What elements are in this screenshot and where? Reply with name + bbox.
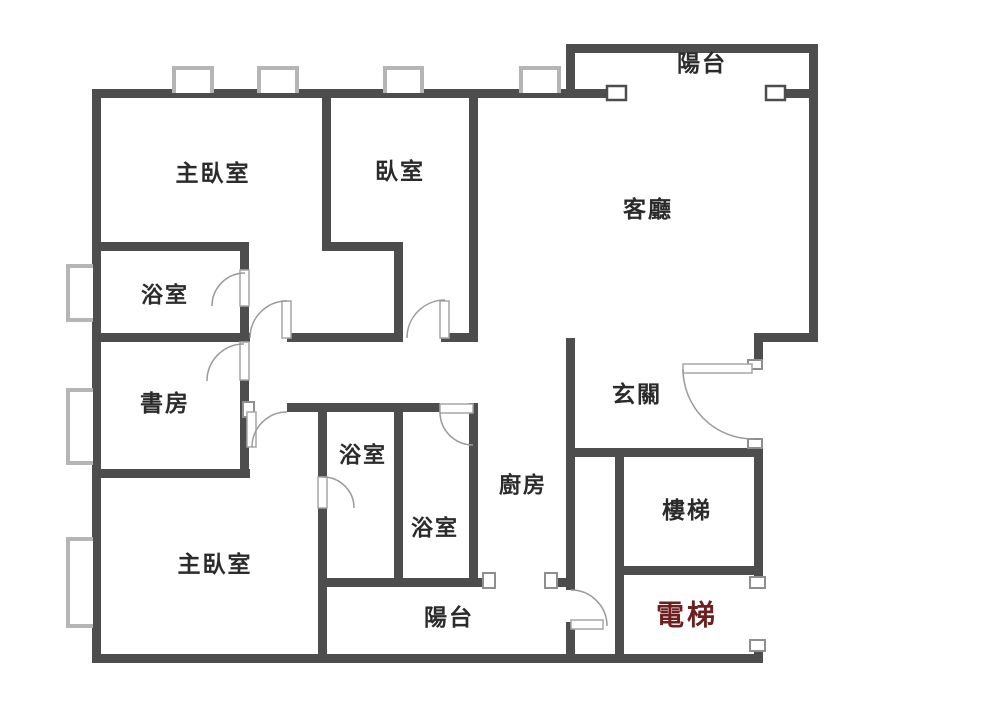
door-leaf [240,342,249,380]
wall-segment [809,44,818,342]
door-arc [252,412,287,447]
door-leaf [247,412,256,447]
wall-segment [783,89,818,98]
windows [68,68,559,626]
wall-segment [566,448,763,457]
wall-segment [287,333,403,342]
elevator-opening-jamb [750,640,765,651]
door-leaf [318,477,327,508]
wall-segment [287,403,440,412]
wall-segment [394,412,403,582]
window-icon [259,68,297,93]
wall-segment [318,403,327,477]
wall-segment [92,89,101,663]
room-label-elevator: 電梯 [656,599,718,632]
room-label-balcony-top: 陽台 [677,50,727,77]
wall-segment [322,242,403,251]
room-label-entry: 玄關 [612,381,662,408]
door-leaf [683,364,752,373]
door-leaf [282,301,291,338]
wall-segment [469,95,478,342]
wall-segment [322,95,331,251]
window-icon [68,390,93,463]
balcony-opening-jamb [766,86,785,100]
window-icon [521,68,559,93]
wall-segment [318,578,484,587]
door-leaf [440,301,449,338]
window-icon [68,539,93,626]
room-label-study: 書房 [140,390,190,417]
elevator-opening-jamb [750,577,765,588]
room-label-stairs: 樓梯 [662,497,712,524]
floor-plan-drawing: 主臥室 臥室 浴室 書房 客廳 陽台 玄關 廚房 浴室 浴室 主臥室 陽台 樓梯… [0,0,1000,720]
kitchen-balcony-jamb [545,573,557,588]
room-label-master-bedroom-top: 主臥室 [176,160,251,187]
kitchen-balcony-jamb [483,573,495,588]
wall-segment [469,412,478,582]
wall-segment [92,469,250,478]
room-label-living-room: 客廳 [623,196,673,223]
wall-segment [615,448,624,654]
door-leaf [440,404,473,413]
balcony-opening-jamb [607,86,626,100]
window-icon [68,266,93,320]
room-label-bathroom-top: 浴室 [141,283,189,309]
door-leaf [571,620,603,629]
wall-segment [92,654,763,663]
room-label-bathroom-mid-lower: 浴室 [411,516,459,542]
wall-segment [566,338,575,590]
window-icon [174,68,212,93]
wall-segment [754,333,763,360]
door-arc [207,344,244,381]
wall-segment [566,89,610,98]
wall-segment [615,566,754,575]
room-label-balcony-bottom: 陽台 [424,604,474,631]
wall-segment [240,242,249,271]
window-icon [385,68,422,93]
entry-door-jamb [748,439,762,448]
room-label-master-bedroom-bottom: 主臥室 [178,551,253,578]
wall-segment [754,333,818,342]
room-label-kitchen: 廚房 [499,473,547,499]
door-leaf [240,270,249,306]
wall-segment [92,242,248,251]
room-label-bedroom: 臥室 [375,158,425,185]
floor-plan-page: 主臥室 臥室 浴室 書房 客廳 陽台 玄關 廚房 浴室 浴室 主臥室 陽台 樓梯… [0,0,1000,720]
wall-segment [92,333,250,342]
wall-segment [754,448,763,578]
room-label-bathroom-mid-upper: 浴室 [339,443,387,469]
door-arc [440,412,473,445]
wall-segment [394,242,403,342]
door-arc [683,369,753,439]
